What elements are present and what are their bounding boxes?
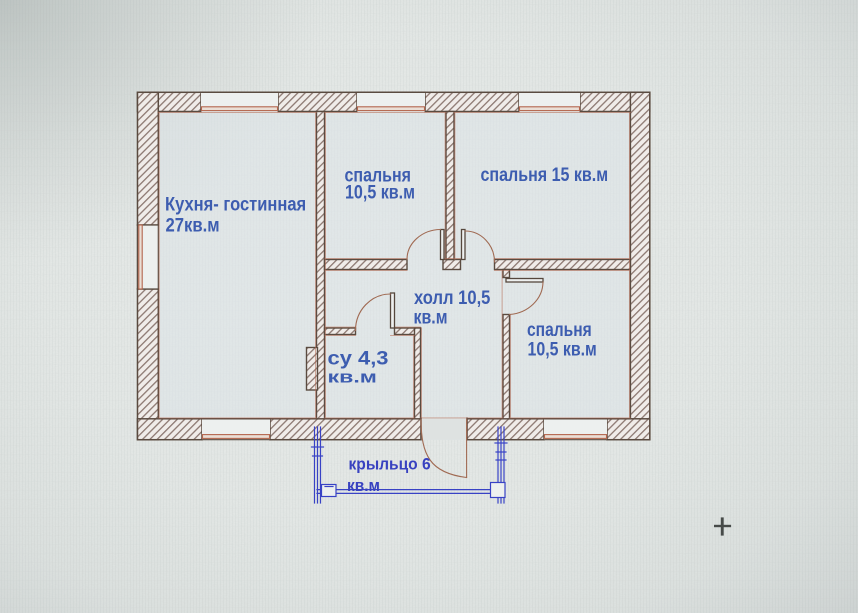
svg-text:спальня 15 кв.м: спальня 15 кв.м [481,165,609,186]
svg-text:холл 10,5: холл 10,5 [414,288,491,309]
svg-text:27кв.м: 27кв.м [166,216,220,237]
svg-text:су 4,3: су 4,3 [328,349,389,370]
svg-text:кв.м: кв.м [347,476,380,495]
svg-text:кв.м: кв.м [414,308,448,329]
svg-text:кв.м: кв.м [328,369,377,387]
svg-text:10,5 кв.м: 10,5 кв.м [528,340,597,361]
svg-text:10,5 кв.м: 10,5 кв.м [345,183,415,204]
svg-text:Кухня- гостинная: Кухня- гостинная [165,195,306,216]
svg-text:спальня: спальня [527,320,592,341]
svg-text:крыльцо 6: крыльцо 6 [349,455,431,474]
